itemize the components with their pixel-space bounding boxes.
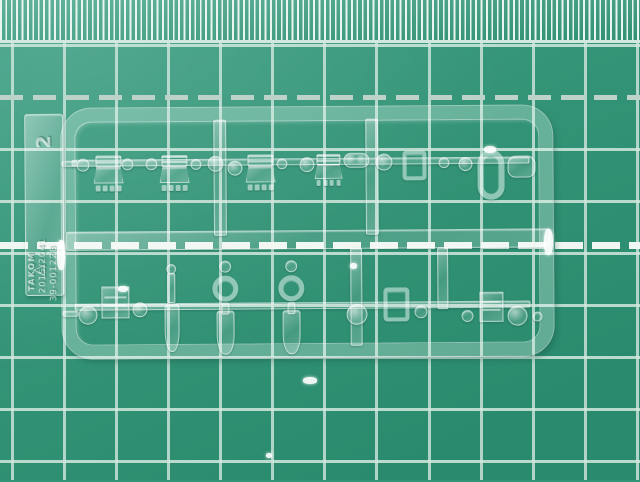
part-pin [162,185,166,191]
disc-part [190,158,201,169]
capsule-part [343,152,369,167]
part-blade [282,310,300,354]
sprue-runner [61,161,77,167]
part-top [96,155,121,167]
sprue-runner [62,311,78,317]
part-ridge [105,305,127,307]
sprue-runner [213,120,227,236]
disc-part [145,158,157,170]
recycling-triangle-icon: △ [29,264,47,276]
part-pin [248,184,252,190]
dome-part [299,157,314,172]
part-top [317,154,341,165]
part-pin [336,180,340,186]
part-body [159,166,189,183]
part-pin [269,184,273,190]
blob-part [507,155,535,177]
part-blade [216,311,234,355]
part-top [162,155,187,167]
plastic-glint [118,286,128,292]
part-pin [330,180,334,186]
dome-part [458,157,472,171]
part-pin [169,185,173,191]
sprue-runner [66,228,550,250]
part-lobe [345,155,356,164]
disc-part [276,158,287,169]
boxpins-part [159,155,189,191]
part-pins [162,184,187,191]
part-blade [164,304,179,352]
part-head [285,260,297,272]
part-ridge [482,309,500,311]
part-pin [323,180,327,186]
bracket-part [383,287,409,321]
part-body [93,167,123,184]
disc-part [414,305,427,318]
sprue-letter: 2 [33,125,55,159]
part-ring [212,276,238,302]
sprue-runner [437,247,448,309]
part-stem [167,273,175,303]
disc-part [121,158,133,170]
dome-part [375,153,392,170]
dome-part [132,302,147,317]
bracket-part [402,150,426,180]
plastic-glint [303,377,317,384]
part-pins [96,185,121,192]
periscope2-part [278,260,305,354]
disc-part [461,310,473,322]
part-pin [255,184,259,190]
disc-part [76,158,89,171]
dome-part [78,305,97,324]
sprue-runner [365,119,379,235]
part-head [219,261,231,273]
plastic-glint [484,146,496,153]
ring-part [477,150,504,200]
part-ridge [104,296,126,298]
periscope2-part [212,261,239,355]
dome-part [207,156,223,172]
periscope-part [163,264,181,352]
part-body [245,166,275,183]
plastic-glint [544,229,553,255]
part-ridge [482,301,500,303]
dome-part [346,303,367,324]
dome-part [227,160,242,175]
part-pins [317,180,341,186]
plastic-glint [57,240,65,270]
part-body [314,164,342,179]
part-pin [103,185,107,191]
part-pin [110,185,114,191]
mold-code-line-2: 39-001228 [49,175,60,301]
part-pins [248,184,273,191]
part-pin [117,185,121,191]
dome-part [507,306,527,326]
boxpins-part [314,154,342,186]
part-pin [183,184,187,190]
boxgrid-part [479,292,503,322]
disc-part [438,157,449,168]
plastic-glint [266,453,272,458]
part-pin [96,185,100,191]
part-pin [176,185,180,191]
boxpins-part [93,155,123,191]
boxpins-part [245,154,275,190]
part-top [248,154,273,166]
part-pin [317,180,321,186]
part-pin [262,184,266,190]
part-ring [278,275,304,301]
plastic-glint [350,263,357,269]
part-lobe [357,155,368,164]
disc-part [533,311,543,321]
